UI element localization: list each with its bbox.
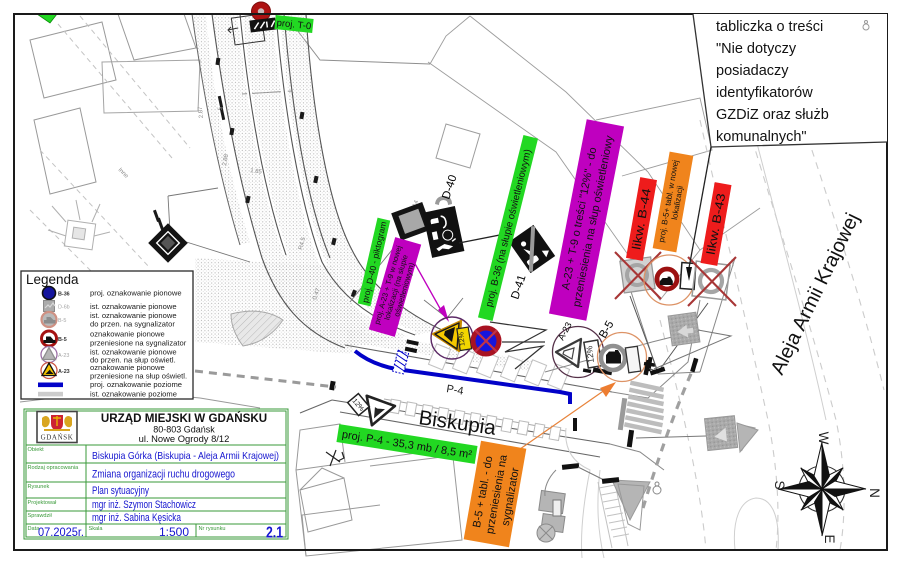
svg-text:07.2025r.: 07.2025r.: [38, 525, 84, 539]
svg-text:B-5: B-5: [58, 337, 67, 343]
svg-text:Plan sytuacyjny: Plan sytuacyjny: [92, 485, 149, 497]
svg-text:D-6b: D-6b: [58, 305, 70, 311]
svg-text:identyfikatorów: identyfikatorów: [716, 85, 813, 101]
svg-text:B-36: B-36: [58, 292, 70, 298]
svg-text:2.87: 2.87: [198, 106, 205, 119]
svg-text:tabliczka o treści: tabliczka o treści: [716, 19, 823, 35]
svg-text:mgr inż. Sabina Kęsicka: mgr inż. Sabina Kęsicka: [92, 512, 182, 524]
svg-text:Sprawdził: Sprawdził: [28, 513, 53, 519]
svg-text:GDAŃSK: GDAŃSK: [41, 434, 74, 442]
svg-text:N: N: [867, 488, 882, 498]
svg-text:Biskupia Górka (Biskupia - Ale: Biskupia Górka (Biskupia - Aleja Armii K…: [92, 450, 279, 462]
svg-text:A-23: A-23: [58, 369, 70, 375]
svg-text:ist. oznakowanie poziome: ist. oznakowanie poziome: [90, 390, 177, 399]
svg-text:proj. oznakowanie poziome: proj. oznakowanie poziome: [90, 380, 182, 389]
svg-text:S: S: [772, 480, 787, 489]
svg-text:E: E: [822, 534, 837, 543]
svg-text:URZĄD MIEJSKI W GDAŃSKU: URZĄD MIEJSKI W GDAŃSKU: [101, 412, 267, 425]
svg-text:Rodzaj opracowania: Rodzaj opracowania: [28, 465, 80, 471]
svg-text:"Nie dotyczy: "Nie dotyczy: [716, 41, 797, 57]
svg-text:12%: 12%: [458, 332, 466, 347]
svg-text:Skala: Skala: [89, 526, 104, 532]
svg-text:do przen. na sygnalizator: do przen. na sygnalizator: [90, 319, 175, 328]
svg-text:2.1: 2.1: [266, 525, 283, 542]
svg-text:przeniesione na sygnalizator: przeniesione na sygnalizator: [90, 338, 187, 347]
svg-text:komunalnych": komunalnych": [716, 129, 807, 145]
svg-text:Legenda: Legenda: [26, 272, 79, 287]
svg-text:B-5: B-5: [58, 318, 66, 324]
svg-text:Nr rysunku: Nr rysunku: [199, 526, 226, 532]
svg-text:ul. Nowe Ogrody 8/12: ul. Nowe Ogrody 8/12: [139, 433, 230, 444]
svg-text:oznakowanie pionowe: oznakowanie pionowe: [90, 330, 165, 339]
svg-text:W: W: [816, 432, 831, 445]
svg-text:12%: 12%: [584, 345, 596, 363]
svg-text:ist. oznakowanie pionowe: ist. oznakowanie pionowe: [90, 302, 177, 311]
svg-text:posiadaczy: posiadaczy: [716, 63, 789, 79]
svg-text:Obiekt: Obiekt: [28, 447, 45, 453]
svg-text:A-23: A-23: [58, 353, 69, 359]
svg-text:1:500: 1:500: [159, 525, 189, 539]
svg-text:Rysunek: Rysunek: [28, 484, 50, 490]
svg-text:Zmiana organizacji ruchu drogo: Zmiana organizacji ruchu drogowego: [92, 469, 235, 481]
svg-text:GZDiZ oraz służb: GZDiZ oraz służb: [716, 107, 829, 123]
svg-text:proj. oznakowanie pionowe: proj. oznakowanie pionowe: [90, 288, 182, 297]
svg-text:mgr inż. Szymon Stachowicz: mgr inż. Szymon Stachowicz: [92, 499, 196, 511]
svg-text:Projektował: Projektował: [28, 500, 58, 506]
